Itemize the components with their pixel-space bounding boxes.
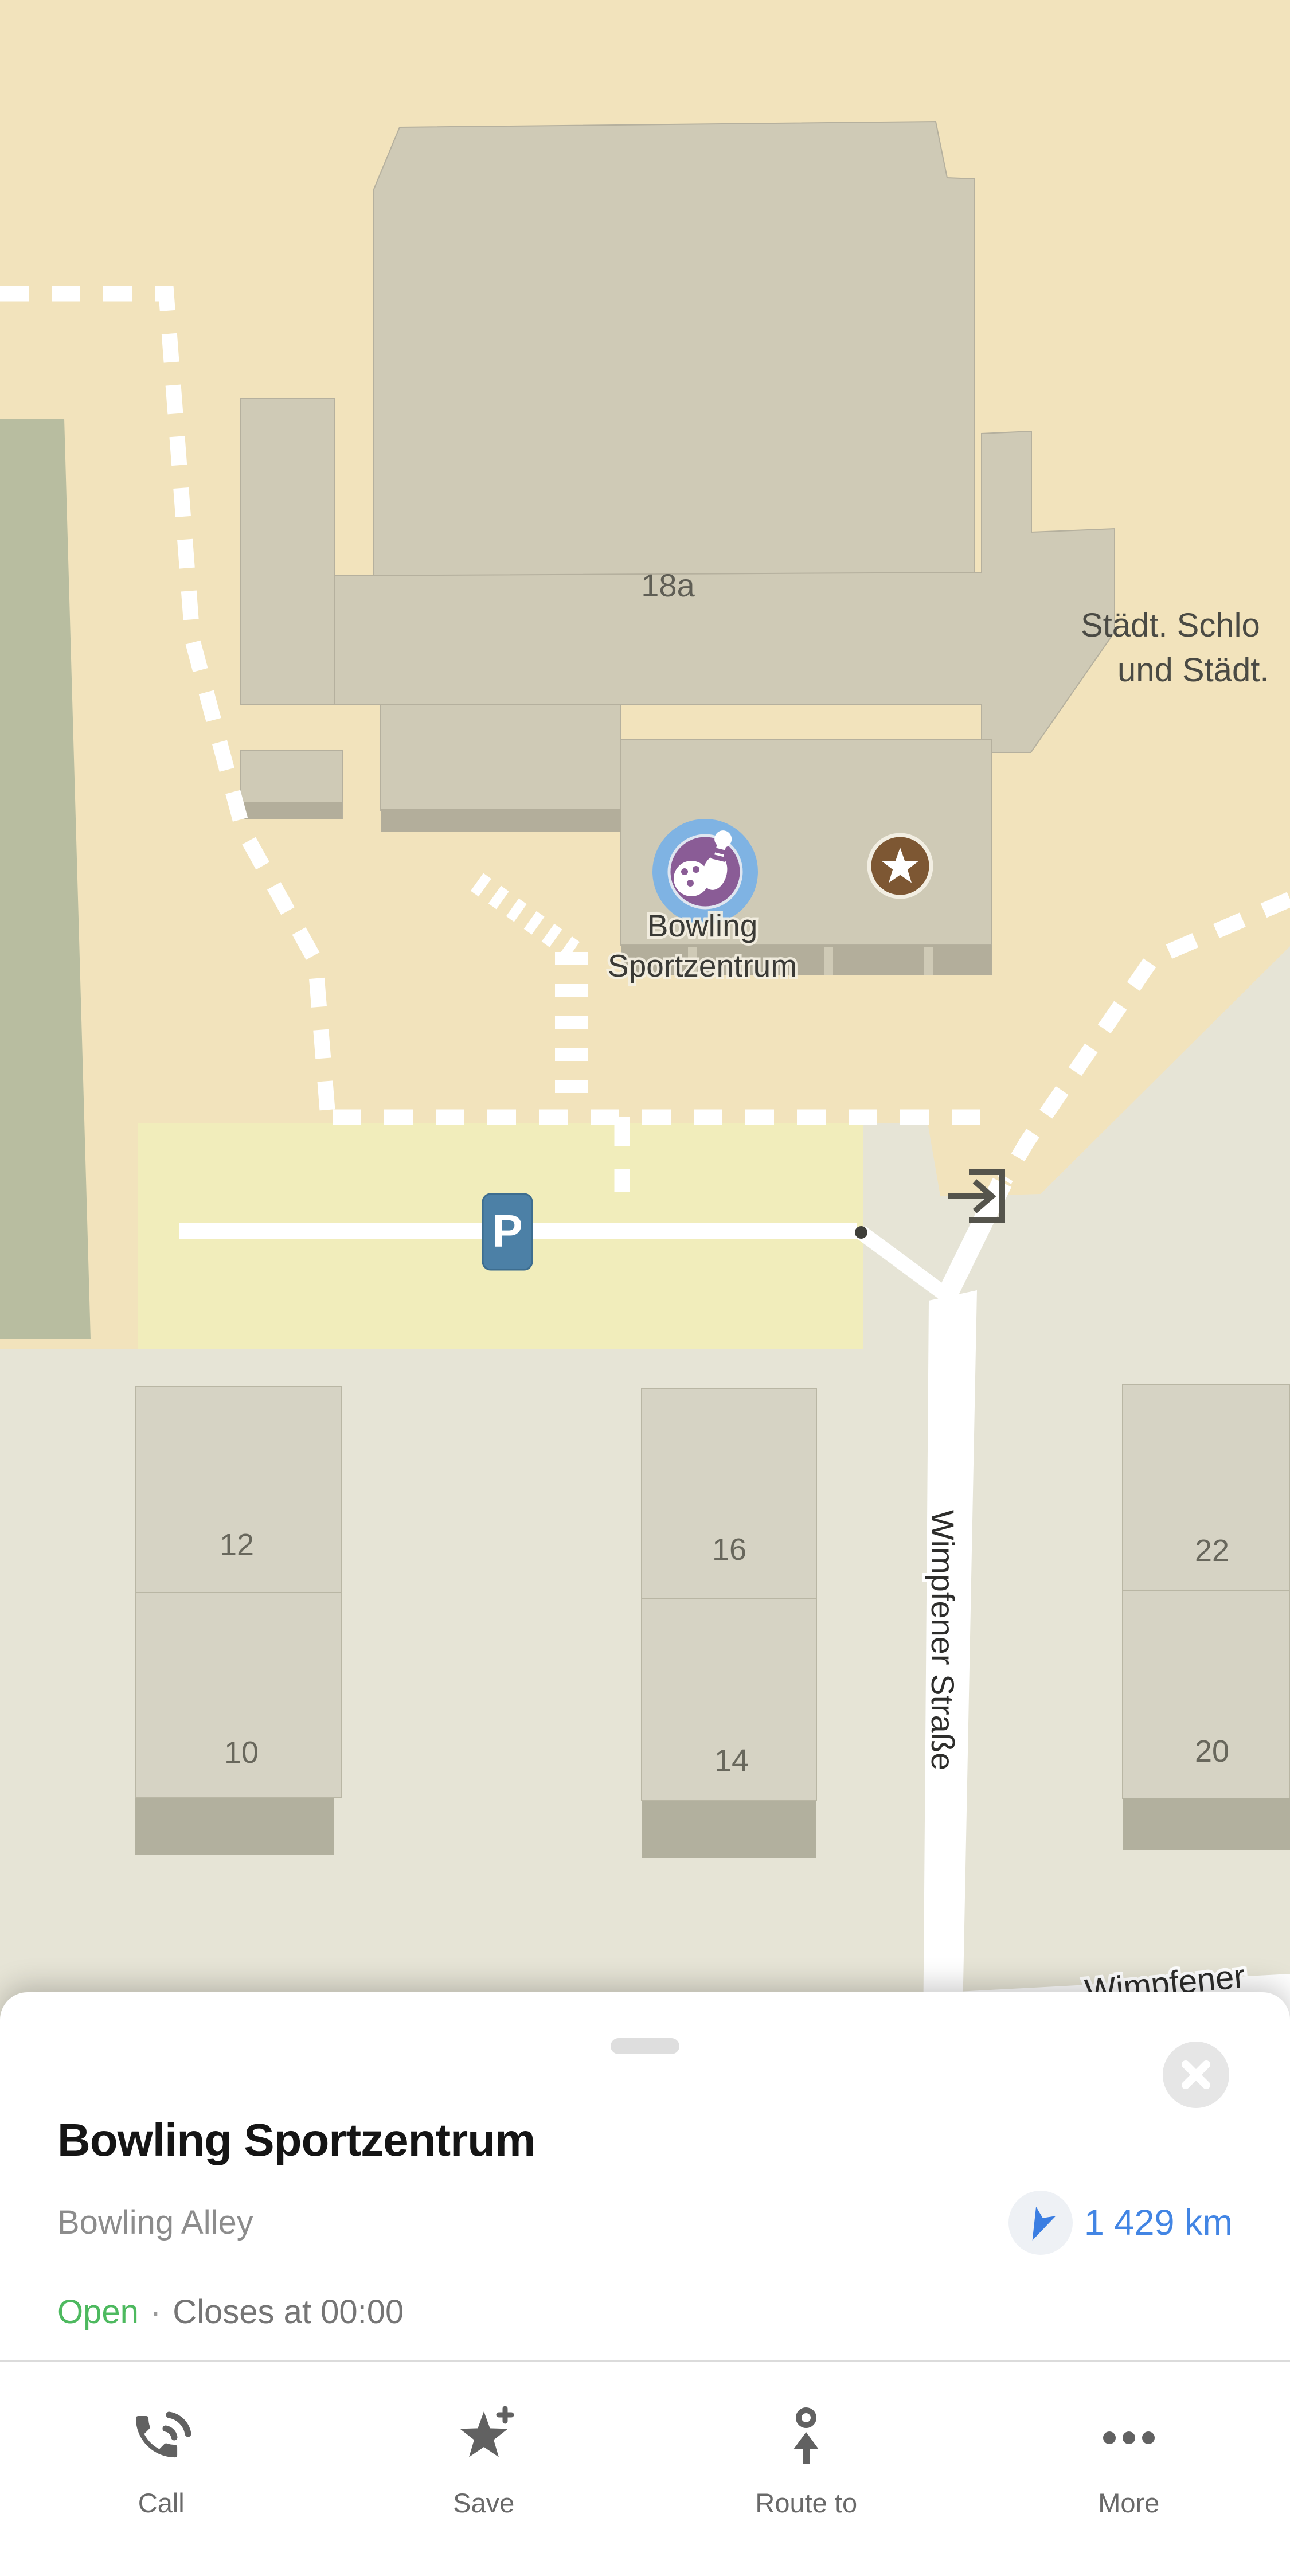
close-icon [1163, 2042, 1229, 2108]
call-button[interactable]: Call [0, 2362, 323, 2576]
building-main [374, 122, 975, 583]
building-small-left-shadow [241, 802, 342, 819]
road-end-dot [855, 1226, 867, 1239]
place-detail-sheet: Bowling Sportzentrum Bowling Alley 1 429… [0, 1992, 1290, 2576]
action-label: Call [138, 2487, 185, 2519]
parking-icon[interactable]: P [483, 1194, 532, 1270]
building-lower-left-shadow [381, 809, 621, 832]
more-dots-icon [1094, 2403, 1163, 2472]
action-bar: Call Save Route to [0, 2362, 1290, 2576]
house-16-14 [642, 1388, 816, 1801]
distance-block: 1 429 km [1008, 2191, 1233, 2255]
route-arrow-icon [772, 2403, 841, 2472]
phone-icon [127, 2403, 196, 2472]
distance-value: 1 429 km [1084, 2202, 1233, 2243]
house-number-12: 12 [220, 1528, 254, 1562]
page-title: Bowling Sportzentrum [57, 2114, 535, 2167]
street-label-vertical: Wimpfener Straße [925, 1510, 961, 1770]
clipped-label-line1: Städt. Schlo [1081, 607, 1260, 644]
poi-label-line2: Sportzentrum [608, 948, 797, 983]
house-number-22: 22 [1195, 1533, 1229, 1568]
status-separator: · [150, 2293, 161, 2331]
navigation-arrow-icon [1008, 2191, 1073, 2255]
close-button[interactable] [1163, 2042, 1229, 2108]
app-screen: P 18a Städt. Schlo und Städt. [0, 0, 1290, 2576]
action-label: More [1098, 2487, 1159, 2519]
house-number-10: 10 [224, 1735, 259, 1770]
action-label: Save [453, 2487, 514, 2519]
house-number-20: 20 [1195, 1734, 1229, 1769]
drag-handle[interactable] [611, 2038, 679, 2054]
more-button[interactable]: More [968, 2362, 1290, 2576]
house-number-16: 16 [712, 1532, 746, 1567]
map[interactable]: P 18a Städt. Schlo und Städt. [0, 0, 1290, 2042]
save-button[interactable]: Save [323, 2362, 646, 2576]
building-left-arm [241, 399, 335, 704]
action-label: Route to [755, 2487, 857, 2519]
category-label: Bowling Alley [57, 2203, 253, 2242]
status-open: Open [57, 2293, 139, 2331]
parking-label: P [492, 1205, 522, 1256]
status-closes: Closes at 00:00 [173, 2293, 404, 2331]
building-lower-left [381, 704, 621, 810]
house-number-14: 14 [714, 1743, 749, 1778]
clipped-label-line2: und Städt. [1117, 651, 1269, 689]
status-line: Open·Closes at 00:00 [57, 2293, 404, 2331]
star-icon[interactable] [869, 835, 931, 897]
poi-label-line1: Bowling [647, 908, 758, 943]
route-to-button[interactable]: Route to [645, 2362, 968, 2576]
star-plus-icon [449, 2403, 518, 2472]
building-number-label: 18a [641, 567, 695, 603]
